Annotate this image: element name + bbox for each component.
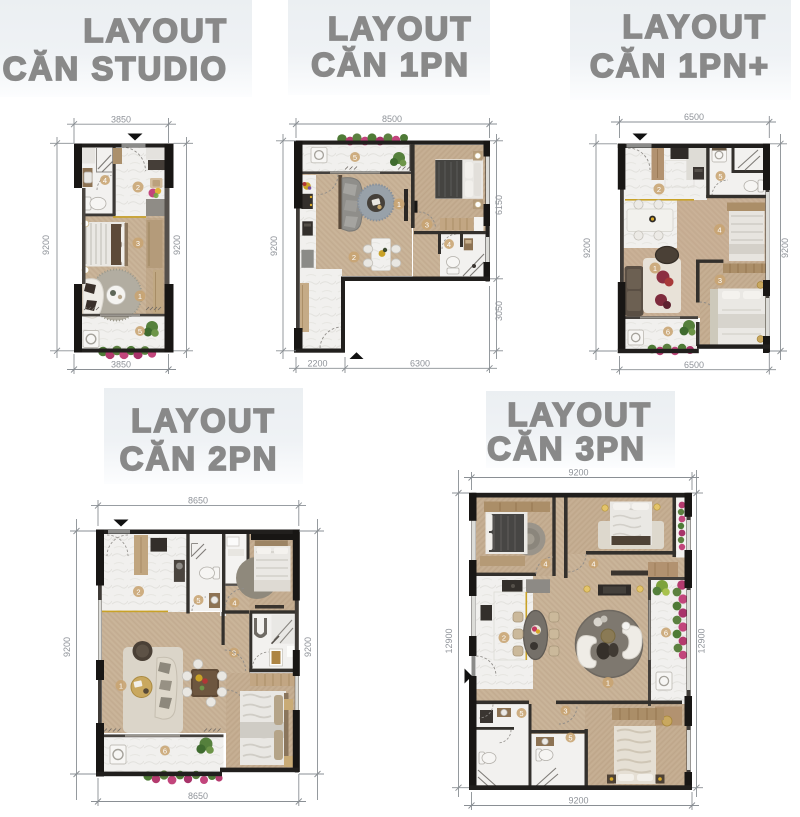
svg-text:3: 3 (718, 276, 722, 285)
svg-text:2: 2 (136, 588, 140, 597)
svg-text:6: 6 (163, 746, 167, 755)
svg-text:8650: 8650 (188, 496, 208, 506)
svg-text:3: 3 (425, 221, 429, 230)
svg-text:4: 4 (543, 559, 547, 568)
svg-text:3050: 3050 (494, 301, 504, 321)
svg-text:5: 5 (138, 327, 142, 336)
svg-text:9200: 9200 (568, 796, 588, 806)
svg-text:6: 6 (664, 628, 668, 637)
svg-text:8500: 8500 (382, 114, 402, 124)
svg-text:2: 2 (352, 253, 356, 262)
svg-text:4: 4 (591, 559, 595, 568)
svg-text:2: 2 (502, 634, 506, 643)
svg-text:1: 1 (653, 264, 657, 273)
svg-text:3850: 3850 (111, 115, 131, 125)
svg-text:5: 5 (568, 733, 572, 742)
svg-text:9200: 9200 (780, 238, 790, 258)
svg-text:1: 1 (119, 682, 123, 691)
svg-text:4: 4 (717, 226, 721, 235)
svg-text:8650: 8650 (188, 791, 208, 801)
svg-text:2: 2 (657, 185, 661, 194)
svg-text:3: 3 (563, 706, 567, 715)
svg-text:4: 4 (232, 598, 236, 607)
svg-text:9200: 9200 (41, 235, 51, 255)
svg-text:9200: 9200 (172, 235, 182, 255)
svg-text:12900: 12900 (697, 628, 707, 653)
svg-text:3: 3 (136, 239, 140, 248)
svg-text:2: 2 (136, 183, 140, 192)
svg-text:1: 1 (397, 200, 401, 209)
svg-text:6500: 6500 (684, 112, 704, 122)
svg-text:6150: 6150 (494, 195, 504, 215)
svg-text:4: 4 (103, 176, 107, 185)
svg-text:6: 6 (666, 327, 670, 336)
svg-text:12900: 12900 (444, 628, 454, 653)
svg-text:5: 5 (196, 596, 200, 605)
svg-text:9200: 9200 (303, 637, 313, 657)
svg-text:9200: 9200 (62, 637, 72, 657)
svg-text:9200: 9200 (568, 468, 588, 478)
svg-text:6500: 6500 (684, 360, 704, 370)
svg-text:6300: 6300 (410, 358, 430, 368)
svg-text:5: 5 (353, 153, 357, 162)
svg-text:5: 5 (718, 172, 722, 181)
svg-text:1: 1 (606, 679, 610, 688)
svg-text:5: 5 (519, 709, 523, 718)
svg-text:3850: 3850 (111, 360, 131, 370)
svg-text:1: 1 (138, 292, 142, 301)
svg-text:4: 4 (447, 240, 451, 249)
svg-text:2200: 2200 (307, 358, 327, 368)
svg-text:9200: 9200 (270, 236, 279, 256)
svg-text:9200: 9200 (582, 238, 592, 258)
